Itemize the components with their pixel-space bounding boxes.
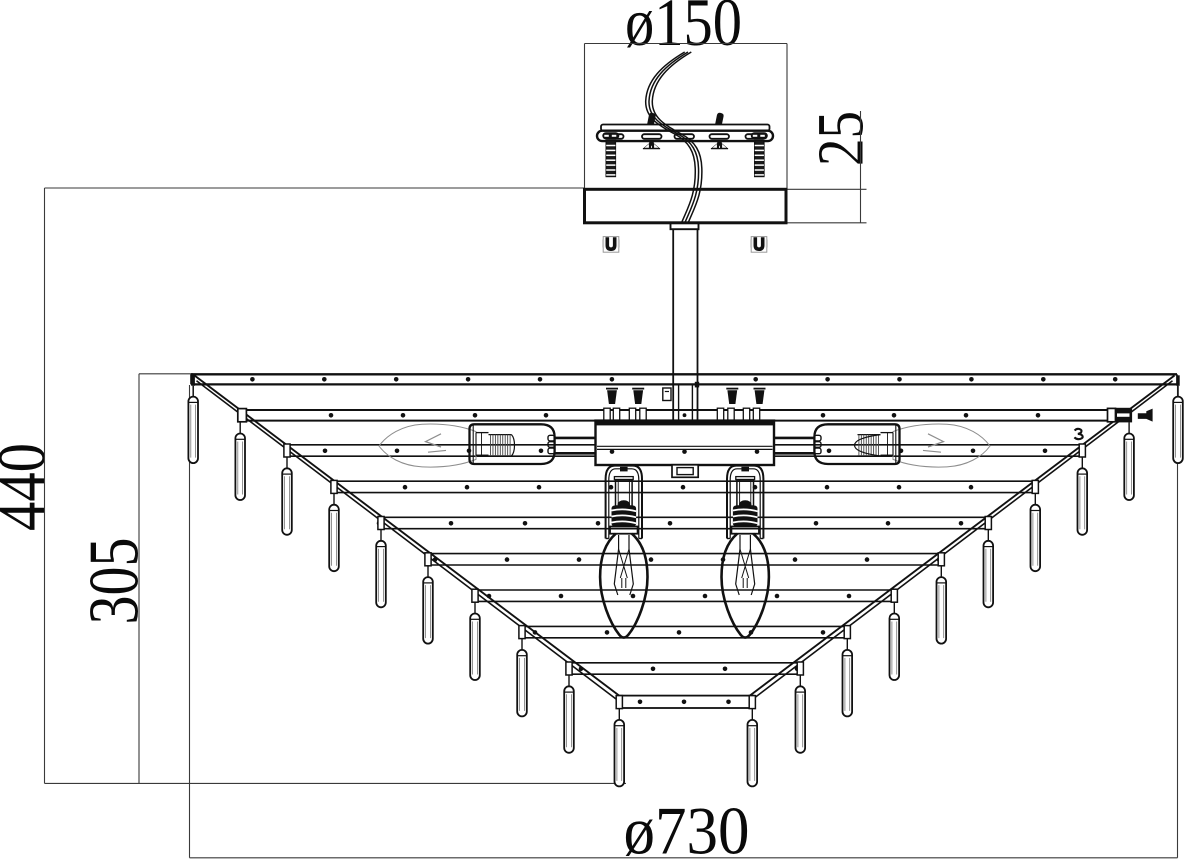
svg-text:ø730: ø730 [624, 793, 750, 865]
svg-text:25: 25 [805, 111, 878, 166]
svg-text:305: 305 [76, 538, 154, 625]
svg-text:ø150: ø150 [625, 0, 742, 60]
svg-text:440: 440 [0, 443, 60, 531]
